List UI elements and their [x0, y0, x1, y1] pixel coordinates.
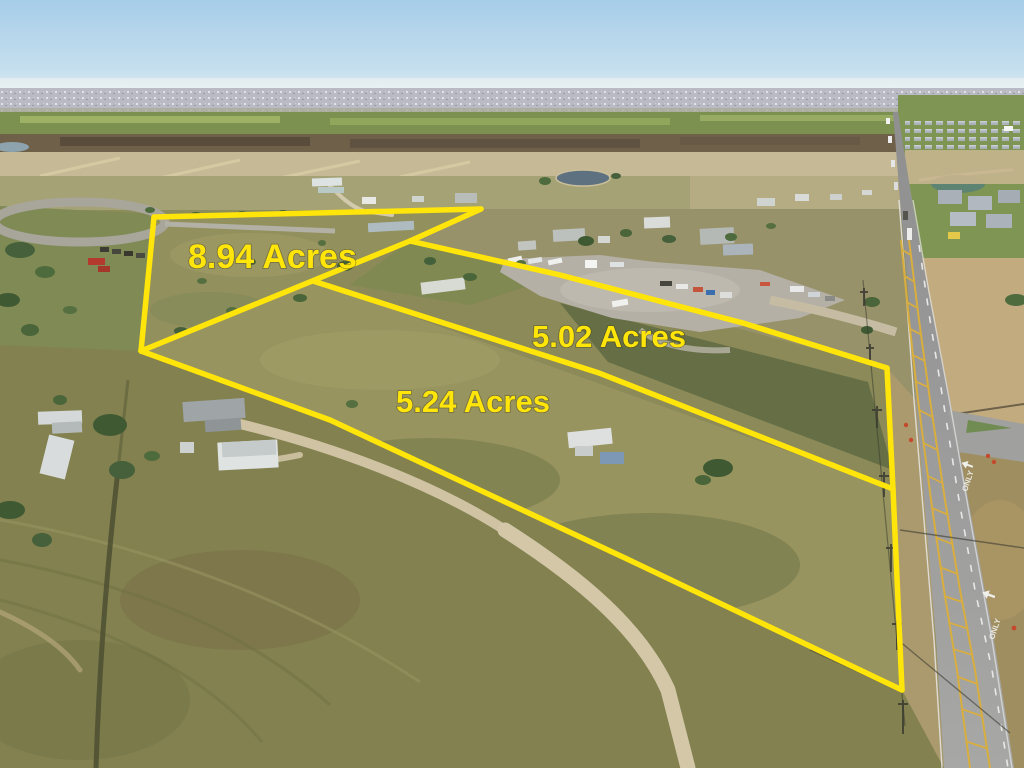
parcel-5-02-label: 5.02 Acres — [532, 319, 686, 354]
sky — [0, 0, 1024, 100]
parcel-8-94-label: 8.94 Acres — [188, 238, 357, 276]
pond — [556, 170, 610, 186]
parcel-5-24-label: 5.24 Acres — [396, 384, 550, 419]
lone-tree — [703, 459, 733, 477]
distant-farmland — [0, 112, 1024, 218]
school-bus — [948, 232, 960, 239]
aerial-photo: ONLY ONLY — [0, 0, 1024, 768]
horizon-city-skyline — [0, 88, 1024, 114]
red-truck — [88, 258, 105, 265]
blue-container — [600, 452, 624, 464]
aerial-photo-canvas: ONLY ONLY — [0, 0, 1024, 768]
